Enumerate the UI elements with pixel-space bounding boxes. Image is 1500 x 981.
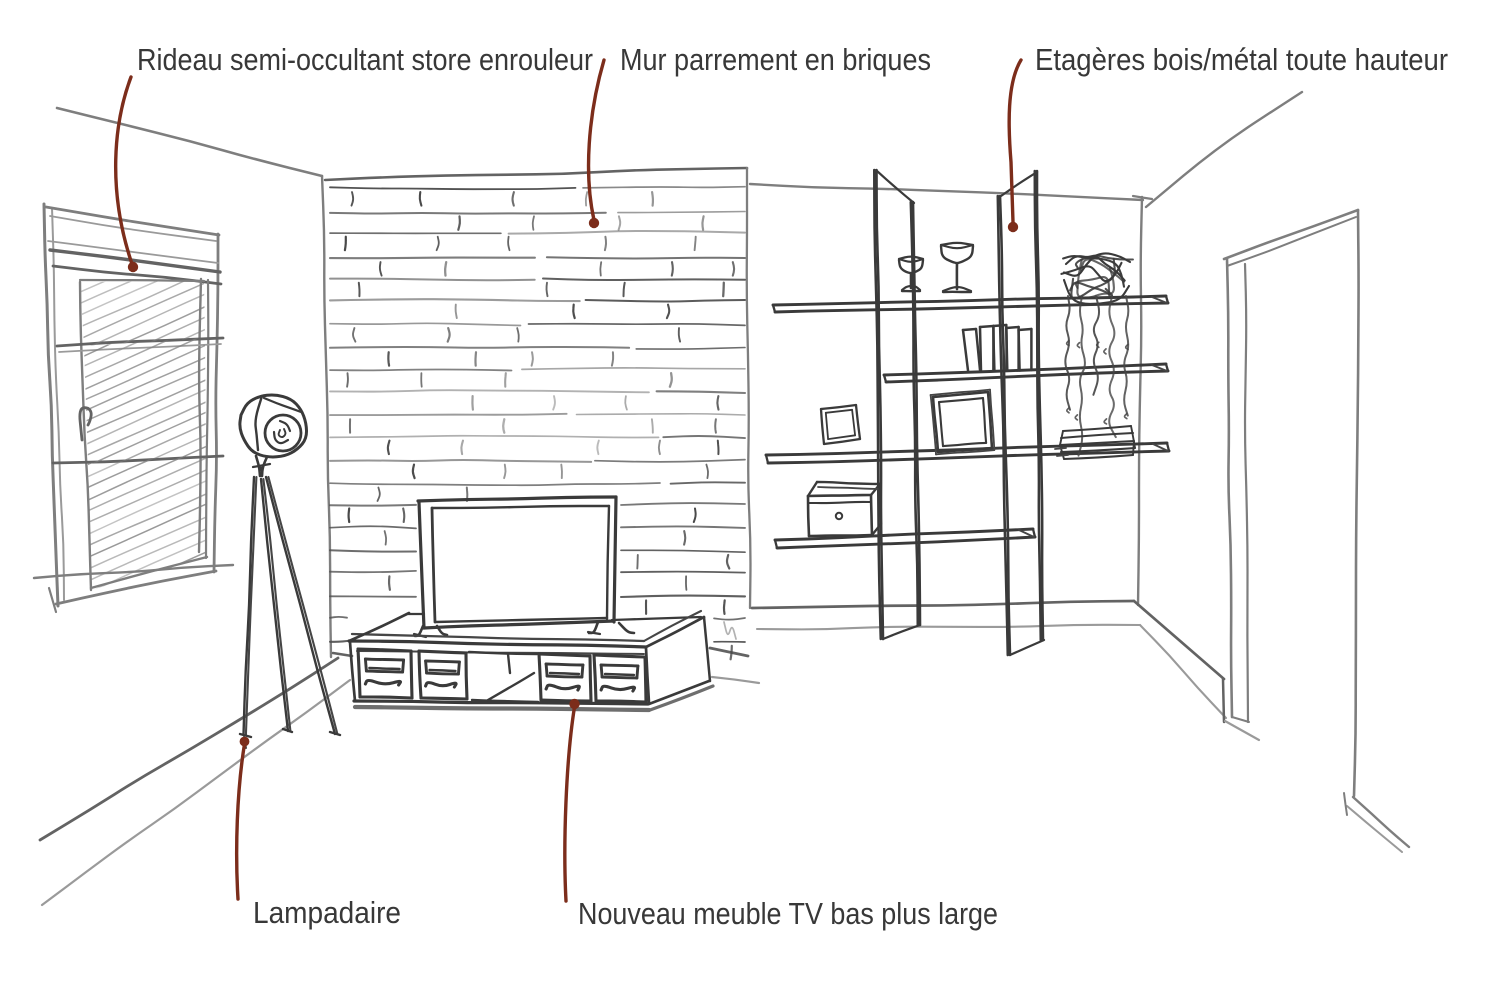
svg-text:Lampadaire: Lampadaire [253, 895, 401, 930]
svg-text:Etagères bois/métal toute haut: Etagères bois/métal toute hauteur [1035, 42, 1448, 77]
svg-text:Nouveau meuble TV bas plus lar: Nouveau meuble TV bas plus large [578, 896, 998, 931]
svg-text:Mur parrement en briques: Mur parrement en briques [620, 42, 931, 77]
svg-text:Rideau semi-occultant store en: Rideau semi-occultant store enrouleur [137, 42, 593, 77]
